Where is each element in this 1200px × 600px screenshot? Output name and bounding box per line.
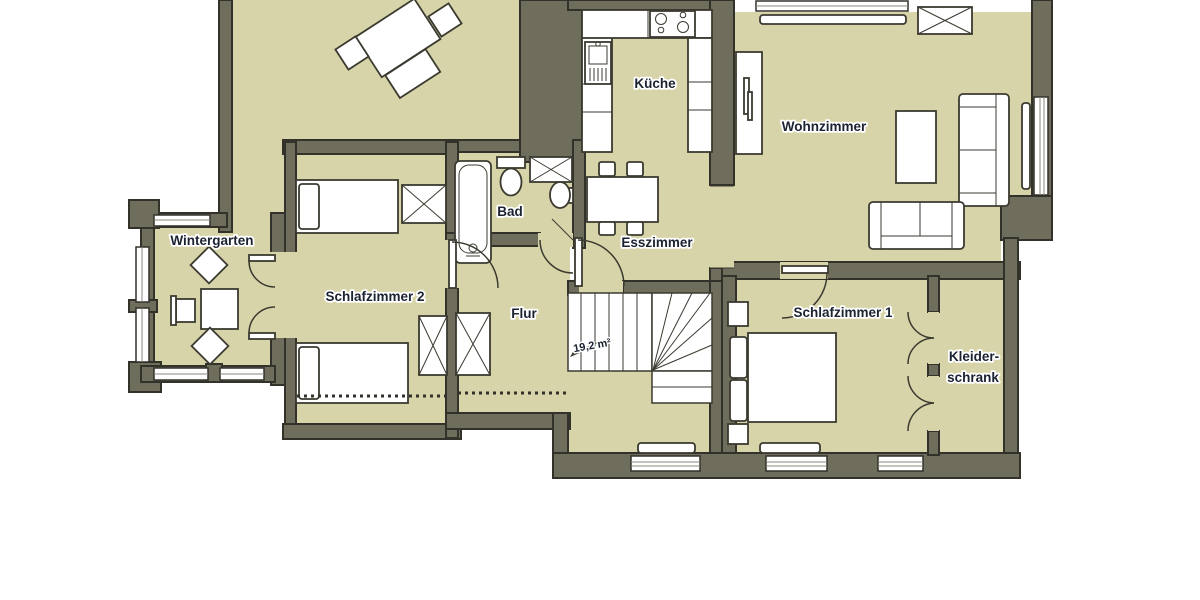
wardrobe-icon xyxy=(402,185,446,223)
window-icon xyxy=(154,215,210,226)
room-label-schlafzimmer1: Schlafzimmer 1 xyxy=(793,305,893,320)
window-icon xyxy=(756,1,908,11)
floorplan-canvas: Wintergarten Schlafzimmer 2 Bad Küche Es… xyxy=(0,0,1200,600)
double-bed-icon xyxy=(730,333,836,422)
coffee-table-icon xyxy=(896,111,936,183)
room-label-schlafzimmer2: Schlafzimmer 2 xyxy=(325,289,424,304)
table-icon xyxy=(201,289,238,329)
room-label-bad: Bad xyxy=(497,204,523,219)
room-kleiderschrank xyxy=(939,277,1006,457)
room-label-flur: Flur xyxy=(511,306,537,321)
radiator-icon xyxy=(760,15,906,24)
shower-icon xyxy=(530,157,572,182)
floorplan-page: Wintergarten Schlafzimmer 2 Bad Küche Es… xyxy=(0,0,1200,600)
chair-icon xyxy=(627,162,643,176)
window-icon xyxy=(1034,97,1048,195)
window-icon xyxy=(136,247,149,302)
nightstand-icon xyxy=(728,424,748,444)
bed-icon xyxy=(296,180,398,233)
bed-icon xyxy=(296,343,408,403)
nightstand-icon xyxy=(728,302,748,326)
window-icon xyxy=(766,456,827,471)
kitchen-sink-icon xyxy=(585,42,611,84)
chair-icon xyxy=(176,299,195,322)
kitchen-counter-icon xyxy=(688,38,712,152)
room-label-kleiderschrank-line1: Kleider- xyxy=(949,349,999,364)
cabinet-icon xyxy=(736,52,762,154)
window-icon xyxy=(154,368,208,380)
room-label-kueche: Küche xyxy=(634,76,676,91)
chair-icon xyxy=(627,222,643,235)
window-icon xyxy=(631,456,700,471)
room-label-kleiderschrank-line2: schrank xyxy=(947,370,999,385)
stove-icon xyxy=(650,11,695,37)
room-label-esszimmer: Esszimmer xyxy=(621,235,693,250)
chair-icon xyxy=(599,222,615,235)
radiator-icon xyxy=(760,443,820,453)
radiator-icon xyxy=(638,443,695,453)
wardrobe-icon xyxy=(918,7,972,34)
radiator-icon xyxy=(1022,103,1030,189)
window-icon xyxy=(220,368,264,380)
room-label-wohnzimmer: Wohnzimmer xyxy=(782,119,867,134)
chair-icon xyxy=(171,296,176,325)
sofa-icon xyxy=(869,202,964,249)
wardrobe-icon xyxy=(456,313,490,375)
window-icon xyxy=(136,308,149,362)
dining-table-icon xyxy=(587,177,658,222)
window-icon xyxy=(878,456,923,471)
room-label-wintergarten: Wintergarten xyxy=(170,233,253,248)
chair-icon xyxy=(599,162,615,176)
sofa-icon xyxy=(959,94,1009,206)
wardrobe-icon xyxy=(419,316,447,375)
